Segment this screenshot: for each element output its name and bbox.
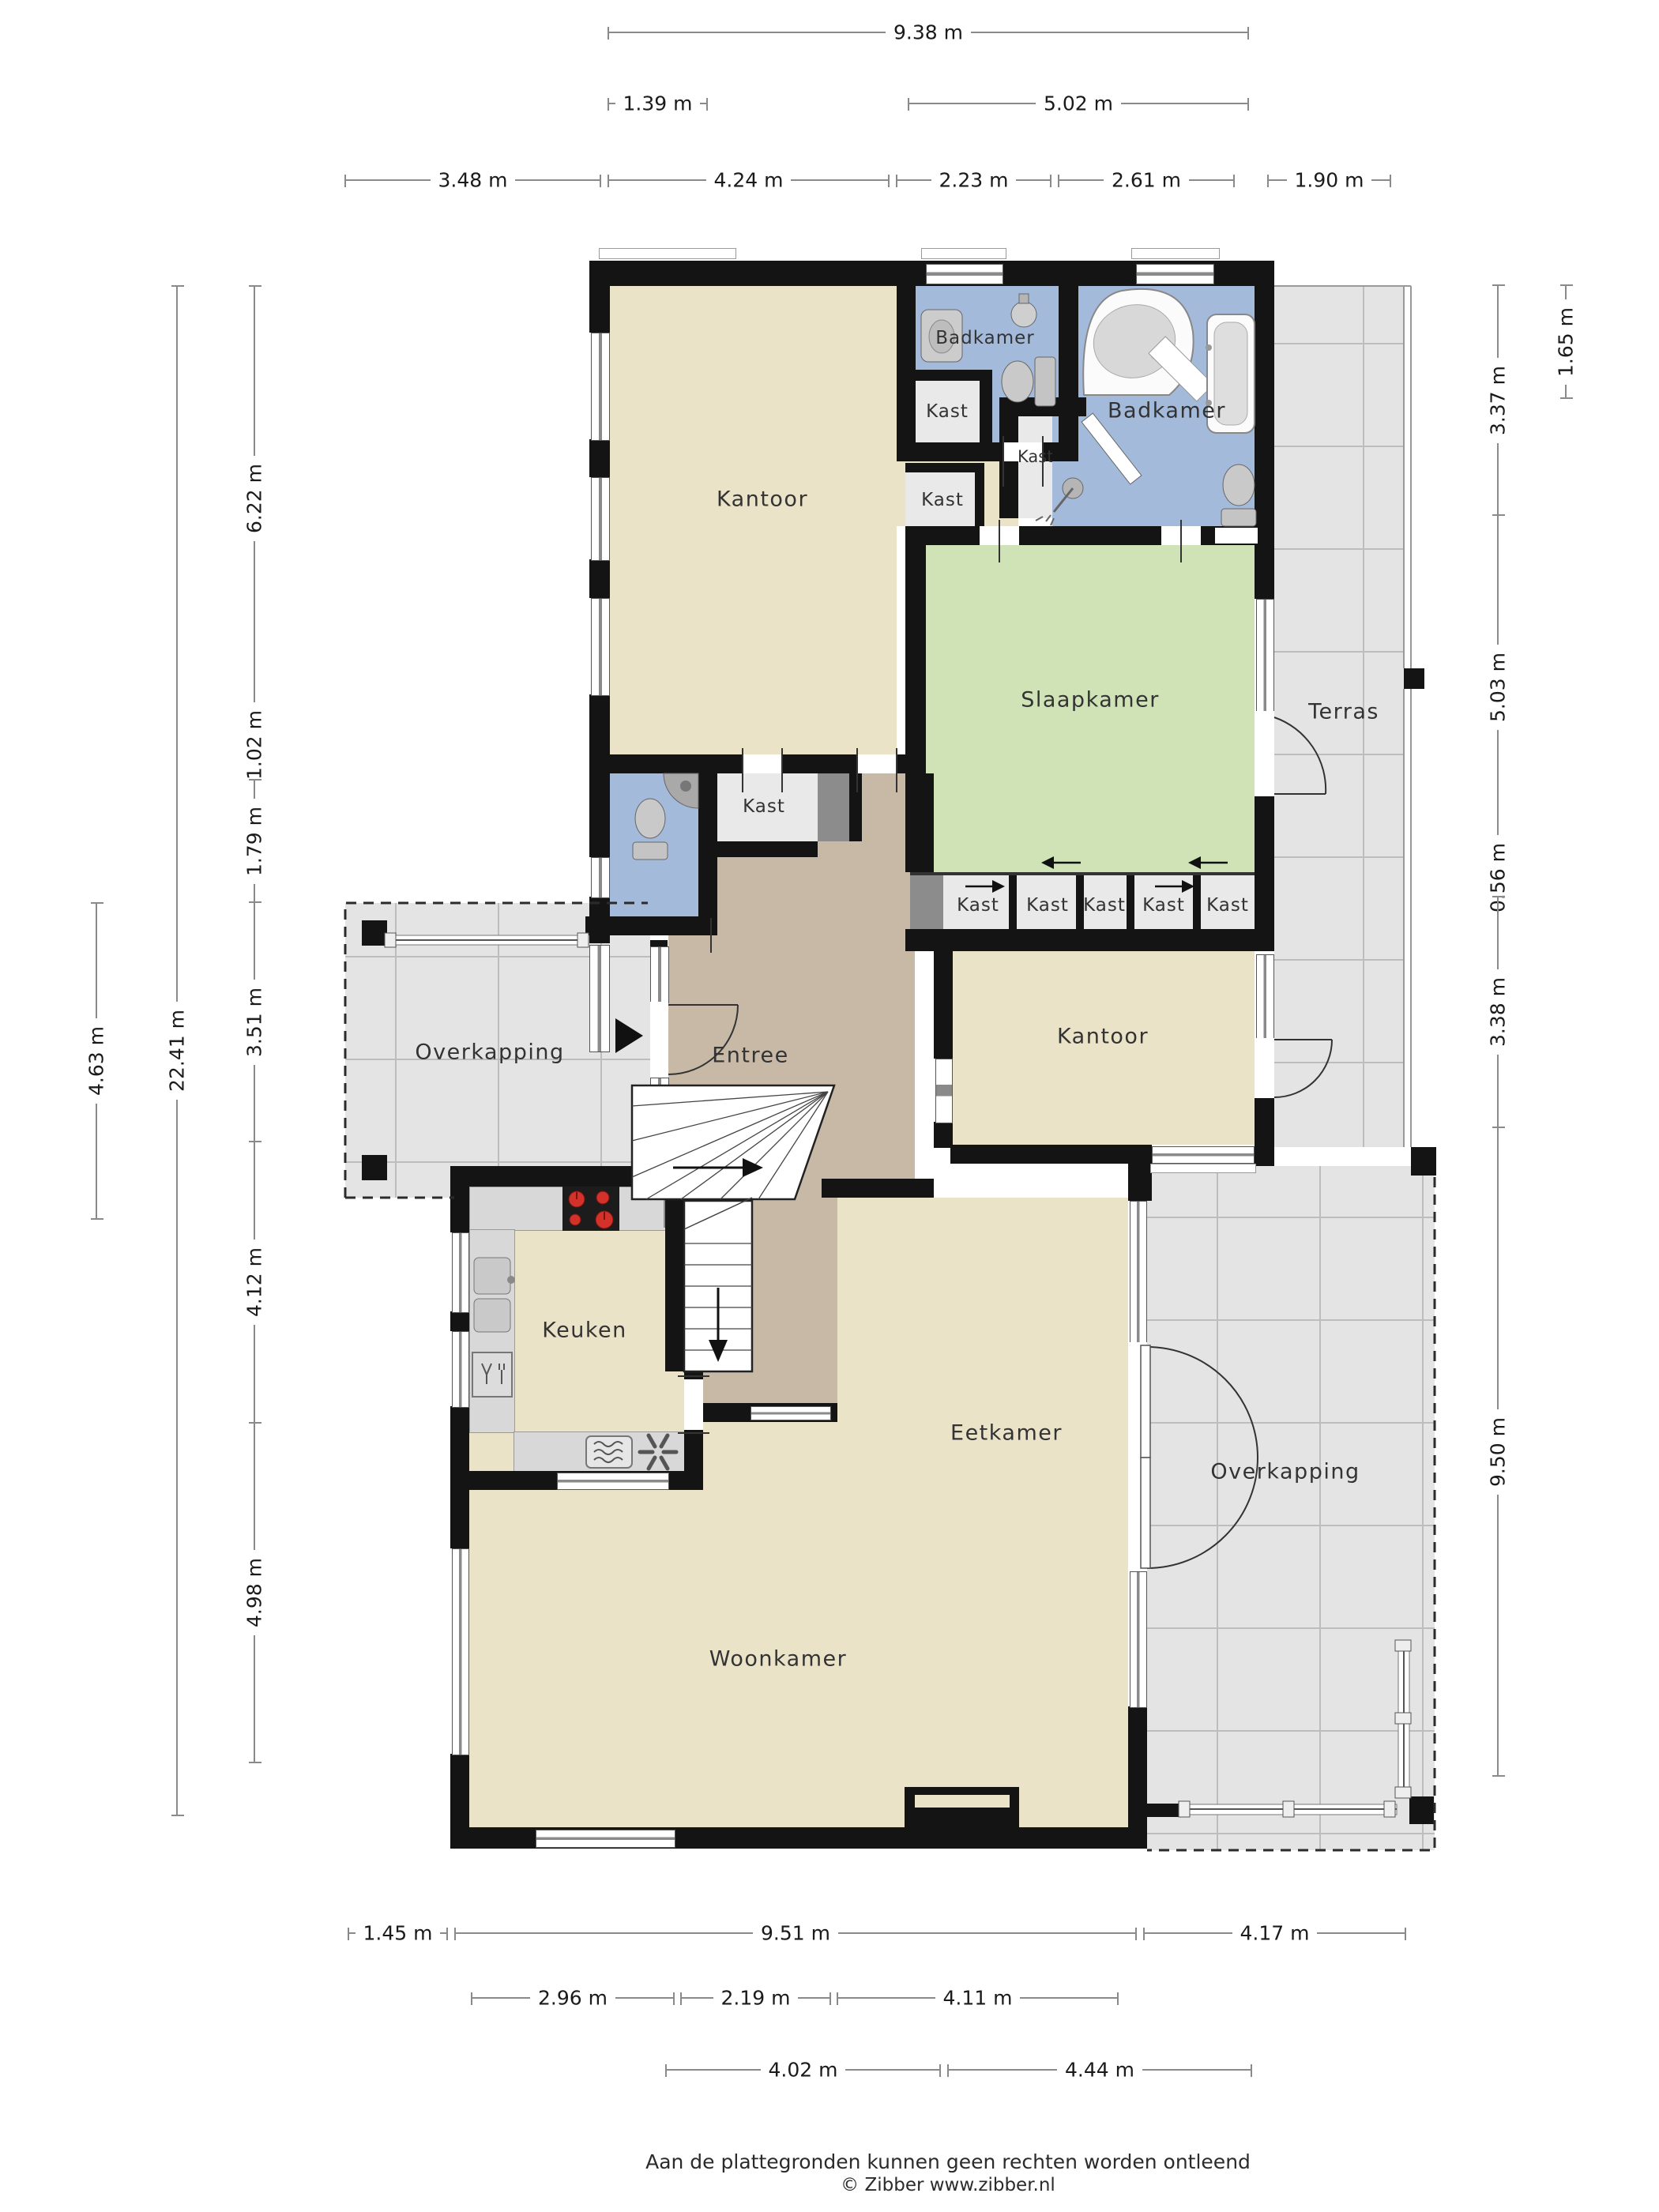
- dimension: 9.51 m: [455, 1932, 1136, 1934]
- closet-label: Kast: [1026, 895, 1069, 916]
- room-label-entree: Entree: [712, 1044, 789, 1068]
- badkamer1-basin: [1011, 294, 1036, 327]
- kantoor2-terras-door: [1274, 1040, 1332, 1097]
- extractor-fan-icon: [640, 1435, 676, 1469]
- room-label-terras: Terras: [1308, 700, 1379, 724]
- dimension: 4.44 m: [948, 2069, 1251, 2071]
- dimension: 5.02 m: [908, 103, 1248, 104]
- wc-shower-corner: [664, 773, 698, 808]
- corner-bathtub: [1083, 289, 1213, 401]
- microwave-icon: [586, 1436, 632, 1468]
- dishwasher-icon: [472, 1352, 512, 1397]
- room-label-kantoor1: Kantoor: [717, 487, 808, 512]
- dimension: 1.02 m: [254, 710, 255, 780]
- room-label-keuken: Keuken: [542, 1319, 626, 1343]
- dimension: 4.63 m: [96, 903, 97, 1219]
- kitchen-sink: [474, 1258, 515, 1332]
- badkamer1-toilet: [1002, 357, 1055, 406]
- railings: [385, 933, 1411, 1817]
- dimension: 1.79 m: [254, 780, 255, 902]
- slaapkamer-terras-door: [1274, 717, 1326, 794]
- dimension: 1.45 m: [348, 1932, 447, 1934]
- closet-label: Kast: [926, 401, 969, 422]
- dimension: 4.02 m: [666, 2069, 940, 2071]
- wc-toilet: [633, 799, 668, 860]
- dimension: 4.11 m: [837, 1997, 1118, 1999]
- plan-linework: [0, 0, 1659, 2212]
- room-label-eetkamer: Eetkamer: [950, 1421, 1063, 1446]
- closet-label-clipped: Kast: [1018, 447, 1052, 466]
- footer-credit: © Zibber www.zibber.nl: [434, 2175, 1461, 2195]
- dimension: 4.12 m: [254, 1142, 255, 1423]
- dimension: 2.96 m: [472, 1997, 674, 1999]
- staircase-lower: [684, 1198, 752, 1371]
- door-ticks: [678, 436, 1181, 1433]
- badkamer2-toilet: [1215, 465, 1258, 544]
- dimension: 3.38 m: [1497, 897, 1499, 1127]
- dimension: 6.22 m: [254, 286, 255, 710]
- burners: [569, 1191, 613, 1228]
- room-label-overkapping-left: Overkapping: [415, 1040, 564, 1065]
- dimension: 1.90 m: [1268, 179, 1390, 181]
- dimension: 4.98 m: [254, 1423, 255, 1762]
- dimension: 2.61 m: [1059, 179, 1234, 181]
- footer-disclaimer: Aan de plattegronden kunnen geen rechten…: [434, 2150, 1461, 2173]
- staircase-upper: [632, 1085, 834, 1199]
- double-door-upper: [1147, 1347, 1258, 1458]
- dimension: 1.39 m: [608, 103, 707, 104]
- room-label-woonkamer: Woonkamer: [709, 1647, 848, 1672]
- dimension: 9.38 m: [608, 32, 1248, 33]
- room-label-badkamer1: Badkamer: [935, 328, 1035, 348]
- room-label-kantoor2: Kantoor: [1057, 1025, 1149, 1049]
- dimension: 4.17 m: [1144, 1932, 1405, 1934]
- dimension: 3.51 m: [254, 902, 255, 1142]
- dimension: 0.56 m: [1497, 859, 1499, 897]
- dimension: 4.24 m: [608, 179, 889, 181]
- dimension: 2.23 m: [897, 179, 1051, 181]
- room-label-badkamer2: Badkamer: [1108, 399, 1226, 423]
- fireplace-notch: [942, 1808, 986, 1819]
- dimension: 3.37 m: [1497, 285, 1499, 515]
- floorplan: Kantoor Badkamer Badkamer Kast Kast Kast…: [0, 0, 1659, 2212]
- dimension-total: 22.41 m: [176, 286, 178, 1815]
- dimension: 2.19 m: [681, 1997, 830, 1999]
- slide-arrows: [965, 856, 1228, 893]
- closet-label: Kast: [1142, 895, 1185, 916]
- closet-label: Kast: [743, 796, 785, 817]
- dimension: 5.03 m: [1497, 515, 1499, 859]
- closet-label: Kast: [1206, 895, 1249, 916]
- dimension: 1.65 m: [1565, 285, 1567, 398]
- dimension: 3.48 m: [345, 179, 600, 181]
- dimension: 9.50 m: [1497, 1127, 1499, 1776]
- shower: [1036, 413, 1142, 525]
- entrance-arrow: [615, 1018, 643, 1053]
- closet-label: Kast: [921, 490, 964, 510]
- room-label-overkapping-right: Overkapping: [1210, 1460, 1360, 1484]
- closet-label: Kast: [957, 895, 999, 916]
- closet-label: Kast: [1083, 895, 1126, 916]
- room-label-slaapkamer: Slaapkamer: [1021, 688, 1160, 713]
